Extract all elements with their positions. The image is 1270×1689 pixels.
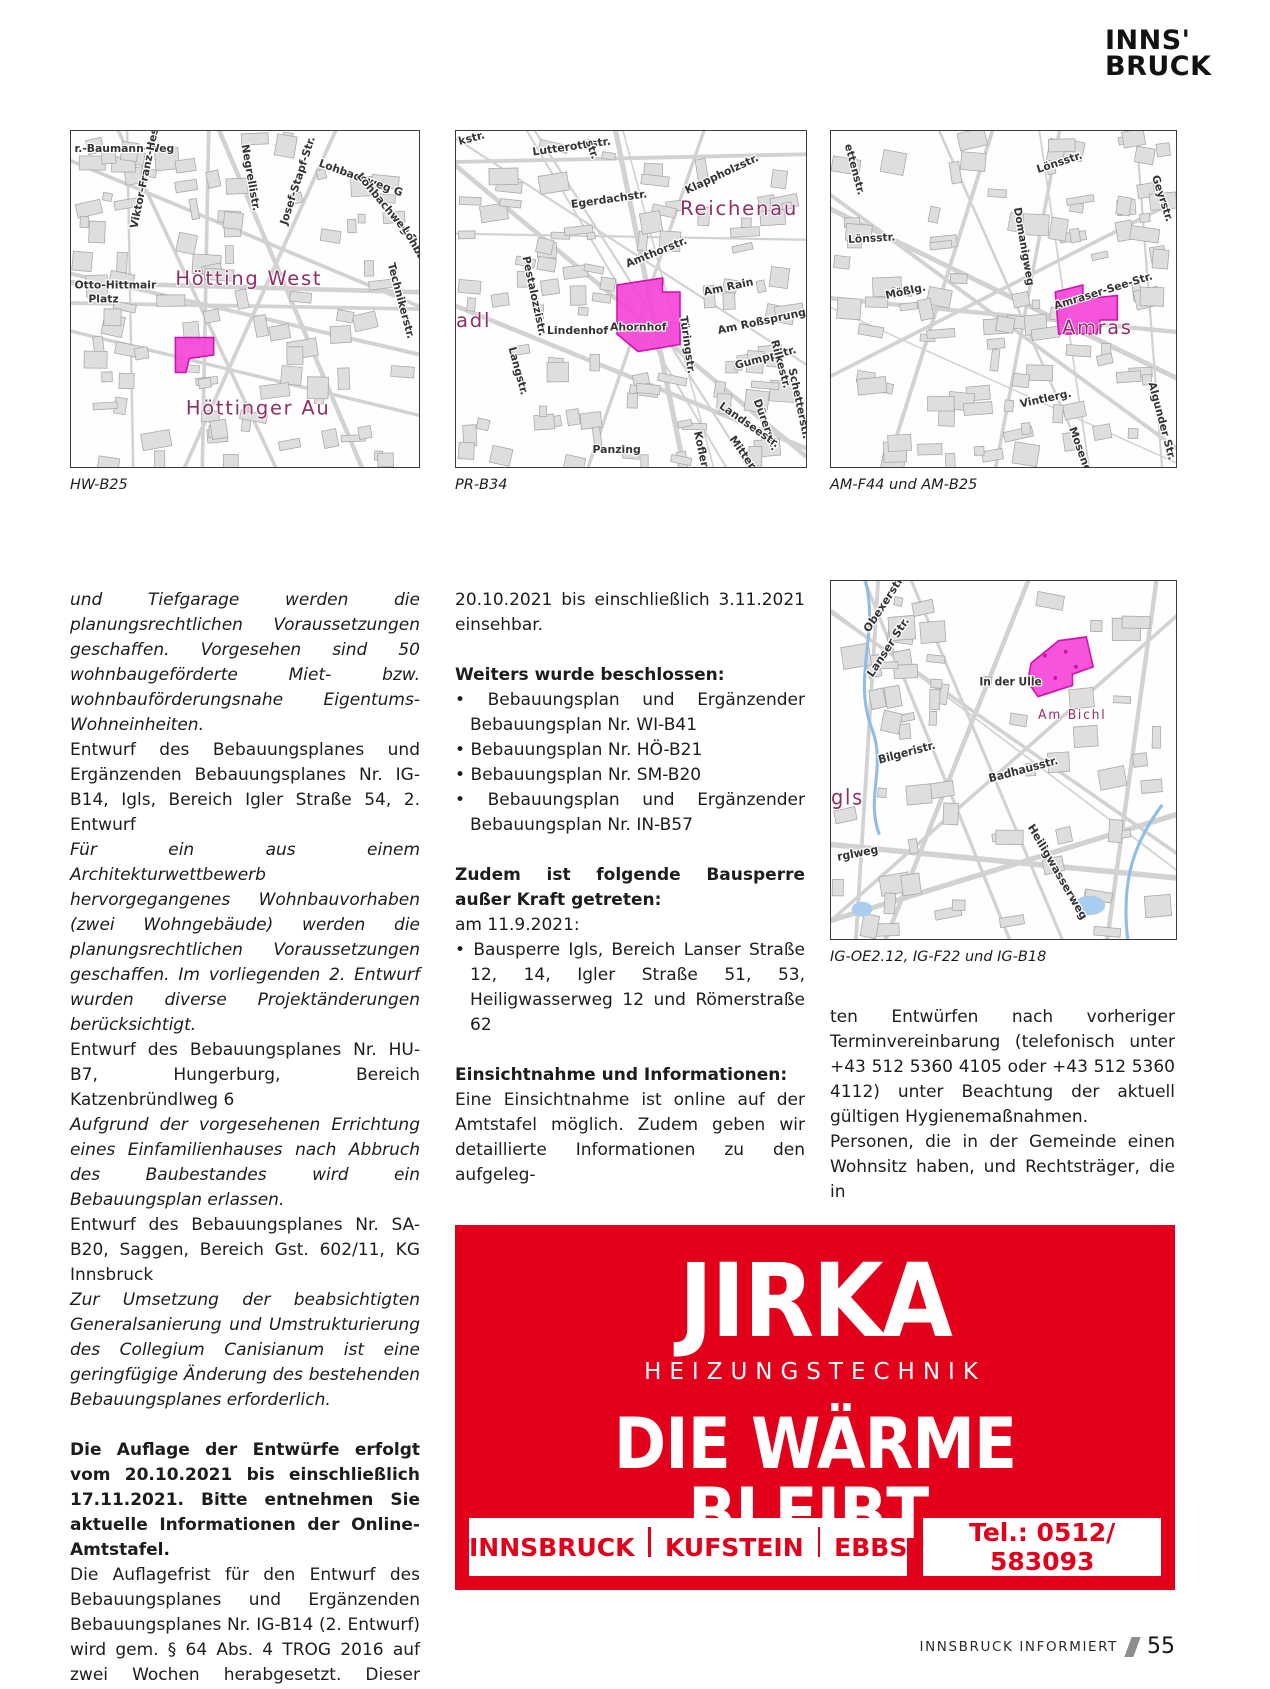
mid-column-paragraph-7: am 11.9.2021: <box>455 913 805 938</box>
jirka-location: INNSBRUCK <box>469 1533 634 1562</box>
logo-line-2: BRUCK <box>1105 54 1212 80</box>
svg-text:Technikerstr.: Technikerstr. <box>385 261 418 340</box>
svg-text:adl: adl <box>456 309 491 332</box>
left-column-paragraph-7: Die Auflage der Entwürfe erfolgt vom 20.… <box>70 1438 420 1563</box>
svg-text:Panzing: Panzing <box>593 443 641 456</box>
mid-column-paragraph-1: Weiters wurde beschlossen: <box>455 663 805 688</box>
mid-column-paragraph-3: Bebauungsplan Nr. HÖ-B21 <box>455 738 805 763</box>
left-column-paragraph-3: Entwurf des Bebauungsplanes Nr. HU-B7, H… <box>70 1038 420 1113</box>
map-caption: AM-F44 und AM-B25 <box>830 477 1177 493</box>
jirka-location: KUFSTEIN <box>665 1533 804 1562</box>
mid-column-paragraph-9: Einsichtnahme und Informationen: <box>455 1063 805 1088</box>
svg-text:Am Roßsprung: Am Roßsprung <box>716 306 806 337</box>
svg-text:In der Ulle: In der Ulle <box>979 675 1041 688</box>
svg-text:Amras: Amras <box>1062 316 1132 339</box>
left-column-paragraph-1: Entwurf des Bebauungsplanes und Ergänzen… <box>70 738 420 838</box>
mid-column-paragraph-6: Zudem ist folgende Bausperre außer Kraft… <box>455 863 805 913</box>
svg-text:kstr.: kstr. <box>457 131 486 148</box>
mid-column-paragraph-4: Bebauungsplan Nr. SM-B20 <box>455 763 805 788</box>
magazine-page: INNS' BRUCK r.-Baumann-WegViktor-Franz-H… <box>0 0 1270 1689</box>
mid-column-paragraph-8: Bausperre Igls, Bereich Lanser Straße 12… <box>455 938 805 1038</box>
jirka-brand-logo: JIRKA <box>491 1251 1139 1353</box>
svg-text:Bilgeristr.: Bilgeristr. <box>877 738 937 766</box>
svg-text:Am Bichl: Am Bichl <box>1038 708 1106 724</box>
jirka-subtitle: HEIZUNGSTECHNIK <box>455 1359 1175 1385</box>
innsbruck-logo: INNS' BRUCK <box>1105 28 1212 79</box>
jirka-locations: INNSBRUCKKUFSTEINEBBS <box>469 1518 907 1576</box>
svg-text:gls: gls <box>831 785 864 810</box>
location-divider <box>818 1527 821 1557</box>
svg-text:Höttinger Au: Höttinger Au <box>186 396 331 419</box>
map-pradl-reichenau: kstr.Lutterottistr.str.Egerdachstr.Klapp… <box>455 130 807 468</box>
jirka-location: EBBS <box>834 1533 907 1562</box>
left-column: und Tiefgarage werden die planungsrechtl… <box>70 588 420 1689</box>
mid-column-paragraph-10: Eine Einsichtnahme ist online auf der Am… <box>455 1088 805 1188</box>
left-column-paragraph-2: Für ein aus einem Architekturwettbewerb … <box>70 838 420 1038</box>
jirka-advertisement[interactable]: JIRKA HEIZUNGSTECHNIK DIE WÄRME BLEIBT. … <box>455 1225 1175 1590</box>
svg-text:Lindenhof: Lindenhof <box>547 324 608 337</box>
mid-column-paragraph-5: Bebauungsplan und Ergänzender Bebauungsp… <box>455 788 805 838</box>
right-column: ten Entwürfen nach vorheriger Terminvere… <box>830 1005 1175 1205</box>
jirka-phone: Tel.: 0512/ 583093 <box>923 1518 1161 1576</box>
footer-slash-icon <box>1124 1637 1140 1657</box>
map-igls: Obexerstr.Lanser Str.In der UlleBilgeris… <box>830 580 1177 940</box>
svg-text:Badhausstr.: Badhausstr. <box>987 754 1059 786</box>
left-column-paragraph-5: Entwurf des Bebauungsplanes Nr. SA-B20, … <box>70 1213 420 1288</box>
svg-text:r.-Baumann-Weg: r.-Baumann-Weg <box>74 142 174 155</box>
svg-text:Hötting West: Hötting West <box>175 267 322 290</box>
location-divider <box>648 1527 651 1557</box>
svg-text:Reichenau: Reichenau <box>680 197 798 220</box>
svg-text:Ahornhof: Ahornhof <box>610 321 667 334</box>
left-column-paragraph-0: und Tiefgarage werden die planungsrechtl… <box>70 588 420 738</box>
left-column-paragraph-4: Aufgrund der vorgesehenen Errichtung ein… <box>70 1113 420 1213</box>
footer-magazine-name: INNSBRUCK INFORMIERT <box>920 1639 1119 1655</box>
mid-column-paragraph-0: 20.10.2021 bis einschließlich 3.11.2021 … <box>455 588 805 638</box>
logo-line-1: INNS' <box>1105 28 1212 54</box>
left-column-paragraph-6: Zur Umsetzung der beabsichtigten General… <box>70 1288 420 1413</box>
map-caption: IG-OE2.12, IG-F22 und IG-B18 <box>830 949 1177 965</box>
middle-column: 20.10.2021 bis einschließlich 3.11.2021 … <box>455 588 805 1188</box>
svg-text:Negrellistr.: Negrellistr. <box>239 143 263 212</box>
map-block-igls: Obexerstr.Lanser Str.In der UlleBilgeris… <box>830 580 1177 965</box>
map-amras: ettenstr.Lönsstr.Geyrstr.Lönsstr.Domanig… <box>830 130 1177 468</box>
map-caption: HW-B25 <box>70 477 420 493</box>
left-column-paragraph-8: Die Auflagefrist für den Entwurf des Beb… <box>70 1563 420 1689</box>
map-block-pr-b34: kstr.Lutterottistr.str.Egerdachstr.Klapp… <box>455 130 807 493</box>
mid-column-paragraph-2: Bebauungsplan und Ergänzender Bebauungsp… <box>455 688 805 738</box>
svg-text:Lönsstr.: Lönsstr. <box>848 230 896 246</box>
svg-text:Otto-Hittmair: Otto-Hittmair <box>74 278 156 291</box>
page-footer: INNSBRUCK INFORMIERT 55 <box>920 1634 1176 1659</box>
jirka-ad-bottom-row: INNSBRUCKKUFSTEINEBBS Tel.: 0512/ 583093 <box>469 1518 1161 1576</box>
map-block-am-f44: ettenstr.Lönsstr.Geyrstr.Lönsstr.Domanig… <box>830 130 1177 493</box>
map-hoetting-west: r.-Baumann-WegViktor-Franz-Hess-Str.Negr… <box>70 130 420 468</box>
map-block-hw-b25: r.-Baumann-WegViktor-Franz-Hess-Str.Negr… <box>70 130 420 493</box>
right-column-paragraph-1: Personen, die in der Gemeinde einen Wohn… <box>830 1130 1175 1205</box>
page-number: 55 <box>1147 1634 1175 1659</box>
svg-text:Platz: Platz <box>88 292 118 305</box>
svg-text:Türingstr.: Türingstr. <box>677 315 698 374</box>
svg-text:Lohbachw.: Lohbachw. <box>399 224 419 287</box>
right-column-paragraph-0: ten Entwürfen nach vorheriger Terminvere… <box>830 1005 1175 1130</box>
svg-text:Egerdachstr.: Egerdachstr. <box>570 187 648 211</box>
map-caption: PR-B34 <box>455 477 807 493</box>
